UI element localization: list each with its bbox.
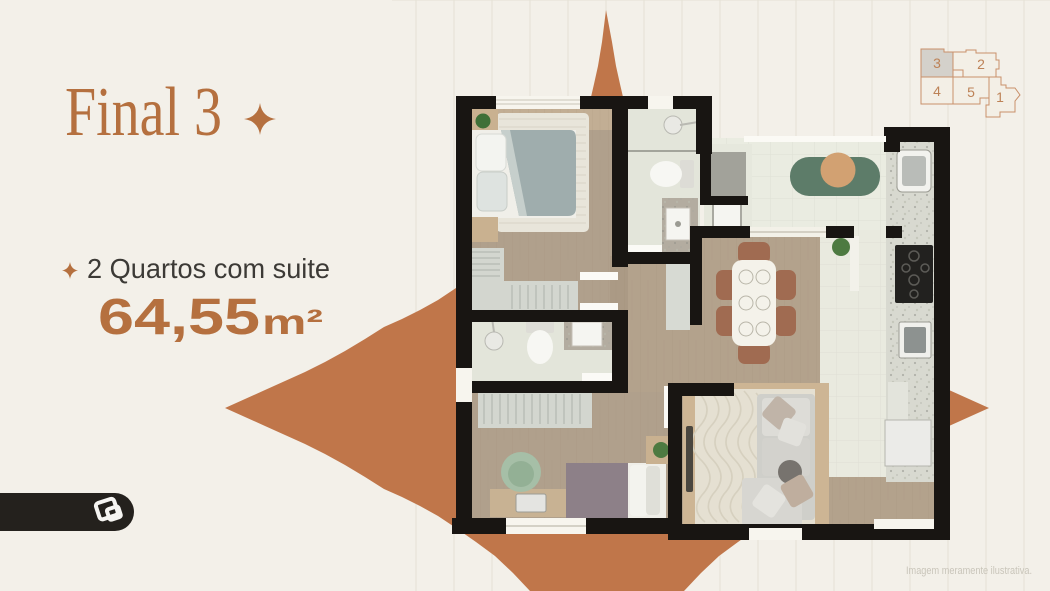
- svg-text:2: 2: [977, 56, 985, 72]
- svg-text:1: 1: [996, 89, 1004, 105]
- svg-text:Final 3: Final 3: [65, 74, 222, 151]
- svg-text:5: 5: [967, 84, 975, 100]
- svg-text:2 Quartos com suite: 2 Quartos com suite: [87, 253, 330, 284]
- svg-text:4: 4: [933, 83, 941, 99]
- svg-text:Imagem meramente ilustrativa.: Imagem meramente ilustrativa.: [906, 565, 1032, 577]
- svg-text:m²: m²: [262, 303, 323, 342]
- svg-text:64,55: 64,55: [98, 288, 260, 345]
- svg-text:3: 3: [933, 55, 941, 71]
